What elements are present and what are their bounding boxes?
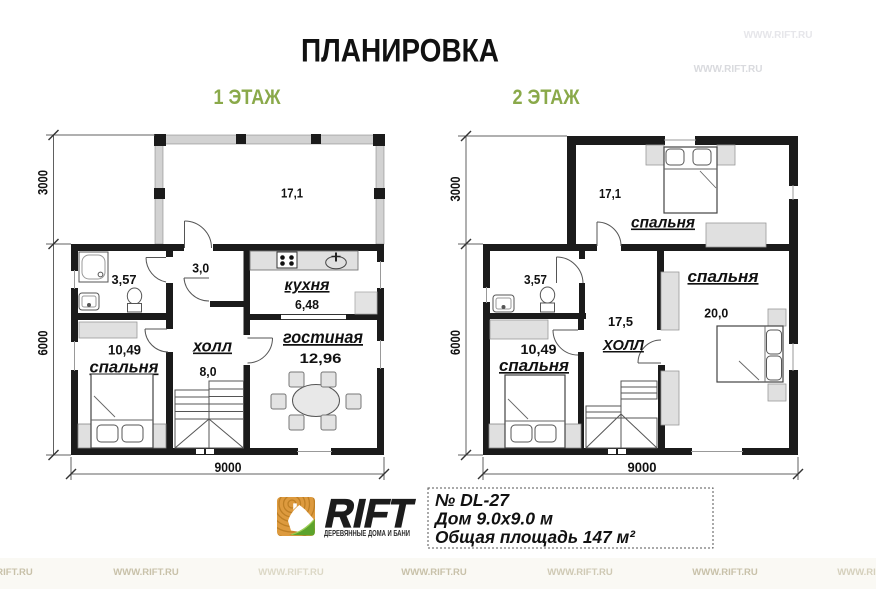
svg-text:10,49: 10,49: [521, 342, 557, 357]
svg-text:WWW.RIFT.RU: WWW.RIFT.RU: [401, 567, 467, 578]
svg-text:12,96: 12,96: [300, 351, 343, 366]
svg-text:17,1: 17,1: [281, 186, 303, 201]
svg-text:WWW.RIFT.RU: WWW.RIFT.RU: [694, 64, 763, 75]
svg-text:гостиная: гостиная: [283, 327, 363, 347]
svg-text:3,57: 3,57: [112, 272, 137, 287]
svg-text:WWW.RIFT.RU: WWW.RIFT.RU: [744, 30, 813, 41]
svg-text:20,0: 20,0: [704, 306, 728, 321]
svg-text:1 ЭТАЖ: 1 ЭТАЖ: [214, 86, 282, 109]
svg-text:Дом 9.0х9.0 м: Дом 9.0х9.0 м: [433, 509, 553, 529]
svg-text:спальня: спальня: [499, 357, 569, 375]
svg-text:8,0: 8,0: [200, 365, 217, 379]
svg-text:холл: холл: [192, 338, 232, 356]
svg-text:спальня: спальня: [631, 215, 696, 232]
svg-text:9000: 9000: [628, 460, 657, 475]
svg-text:17,1: 17,1: [599, 186, 621, 201]
svg-text:6000: 6000: [447, 330, 463, 355]
svg-text:17,5: 17,5: [608, 314, 633, 329]
svg-text:9000: 9000: [215, 460, 242, 475]
svg-text:спальня: спальня: [688, 268, 759, 286]
svg-text:WWW.RIFT.RU: WWW.RIFT.RU: [547, 567, 613, 578]
svg-text:кухня: кухня: [285, 277, 331, 294]
svg-text:WWW.RIFT.RU: WWW.RIFT.RU: [692, 567, 758, 578]
svg-text:3000: 3000: [35, 170, 51, 195]
svg-text:№ DL-27: № DL-27: [435, 490, 510, 510]
svg-text:Общая площадь 147 м²: Общая площадь 147 м²: [435, 527, 636, 547]
svg-text:6,48: 6,48: [295, 297, 319, 312]
svg-text:ХОЛЛ: ХОЛЛ: [602, 337, 645, 354]
svg-text:WWW.RIFT.RU: WWW.RIFT.RU: [258, 567, 324, 578]
svg-text:6000: 6000: [35, 330, 51, 355]
svg-text:3,57: 3,57: [524, 272, 547, 287]
svg-text:3000: 3000: [447, 176, 463, 201]
svg-text:WWW.RIFT.RU: WWW.RIFT.RU: [0, 567, 33, 578]
svg-text:ПЛАНИРОВКА: ПЛАНИРОВКА: [301, 33, 499, 69]
svg-text:10,49: 10,49: [108, 343, 141, 358]
svg-text:WWW.RIFT.RU: WWW.RIFT.RU: [837, 567, 876, 578]
svg-text:3,0: 3,0: [192, 262, 209, 276]
svg-text:2 ЭТАЖ: 2 ЭТАЖ: [513, 86, 581, 109]
svg-text:ДЕРЕВЯННЫЕ ДОМА И БАНИ: ДЕРЕВЯННЫЕ ДОМА И БАНИ: [324, 529, 410, 538]
svg-text:WWW.RIFT.RU: WWW.RIFT.RU: [113, 567, 179, 578]
